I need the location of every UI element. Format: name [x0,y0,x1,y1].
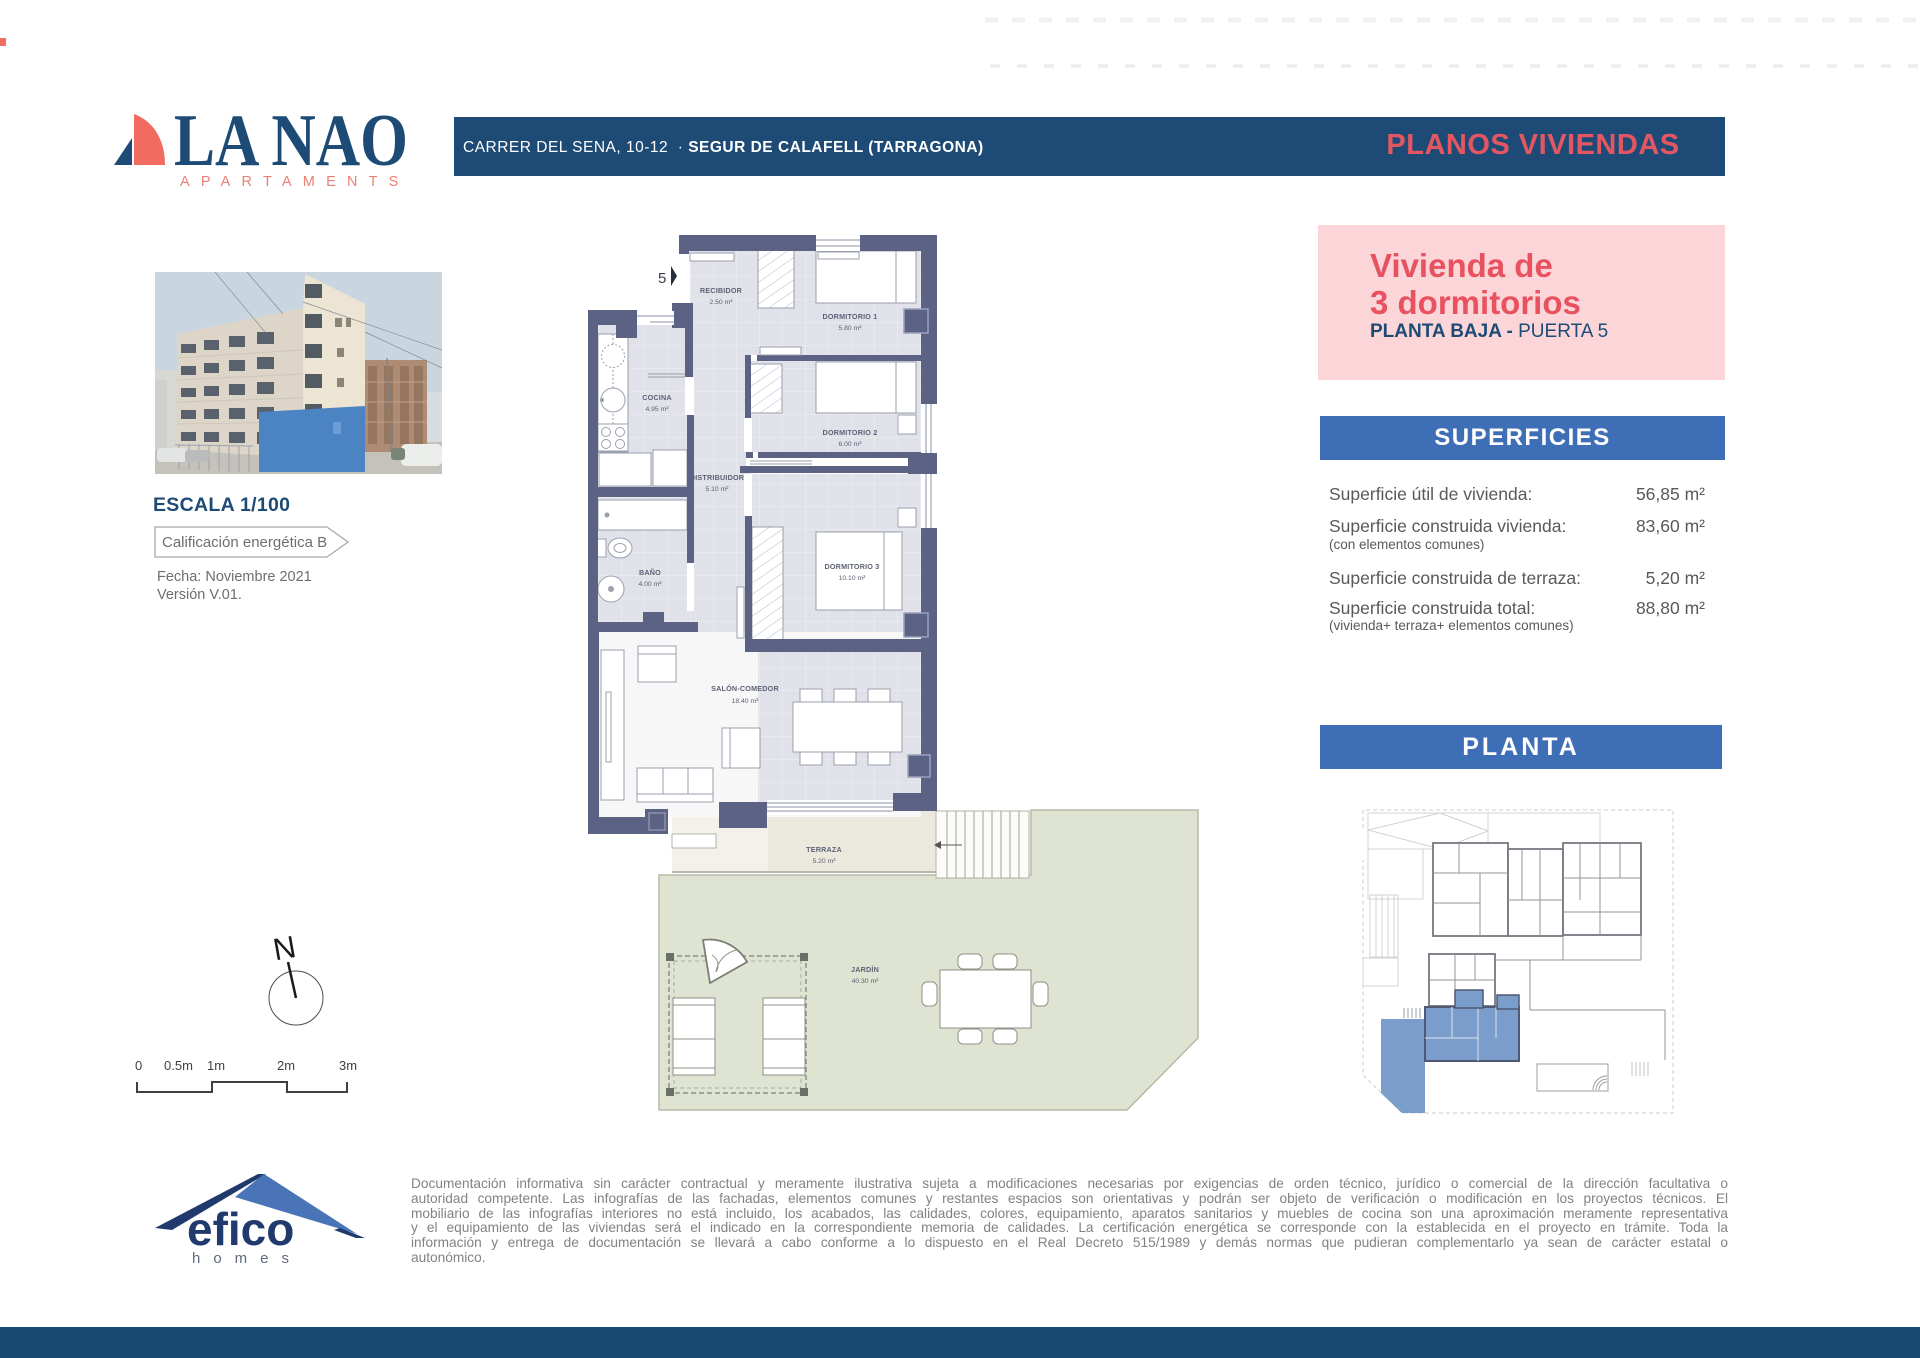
svg-text:COCINA: COCINA [642,393,672,402]
svg-text:APARTAMENTS: APARTAMENTS [180,174,410,190]
svg-text:efico: efico [187,1203,294,1255]
svg-text:5.10 m²: 5.10 m² [705,486,729,493]
svg-text:18.40 m²: 18.40 m² [732,698,760,705]
svg-text:10.10 m²: 10.10 m² [839,575,867,582]
svg-text:2.50 m²: 2.50 m² [709,299,733,306]
svg-text:RECIBIDOR: RECIBIDOR [700,286,743,295]
svg-text:5.20 m²: 5.20 m² [812,858,836,865]
svg-text:N: N [270,929,298,967]
svg-text:5: 5 [658,270,666,287]
svg-text:LA NAO: LA NAO [174,108,408,182]
svg-text:DORMITORIO 1: DORMITORIO 1 [823,312,878,321]
svg-text:BAÑO: BAÑO [639,568,661,577]
svg-text:40.30 m²: 40.30 m² [852,978,880,985]
svg-text:0.5m: 0.5m [164,1058,193,1073]
svg-text:1m: 1m [207,1058,225,1073]
svg-text:DORMITORIO 3: DORMITORIO 3 [825,562,880,571]
svg-text:2m: 2m [277,1058,295,1073]
svg-text:TERRAZA: TERRAZA [806,845,842,854]
svg-text:4.00 m²: 4.00 m² [638,581,662,588]
svg-text:DORMITORIO 2: DORMITORIO 2 [823,428,878,437]
svg-text:JARDÍN: JARDÍN [851,965,879,974]
svg-text:DISTRIBUIDOR: DISTRIBUIDOR [690,473,745,482]
svg-text:6.00 m²: 6.00 m² [838,441,862,448]
svg-text:5.80 m²: 5.80 m² [838,325,862,332]
svg-text:0: 0 [135,1058,142,1073]
svg-text:4.95 m²: 4.95 m² [645,406,669,413]
svg-text:Calificación energética B: Calificación energética B [162,534,327,551]
svg-text:homes: homes [192,1250,302,1267]
svg-text:SALÓN-COMEDOR: SALÓN-COMEDOR [711,684,779,693]
svg-text:3m: 3m [339,1058,357,1073]
